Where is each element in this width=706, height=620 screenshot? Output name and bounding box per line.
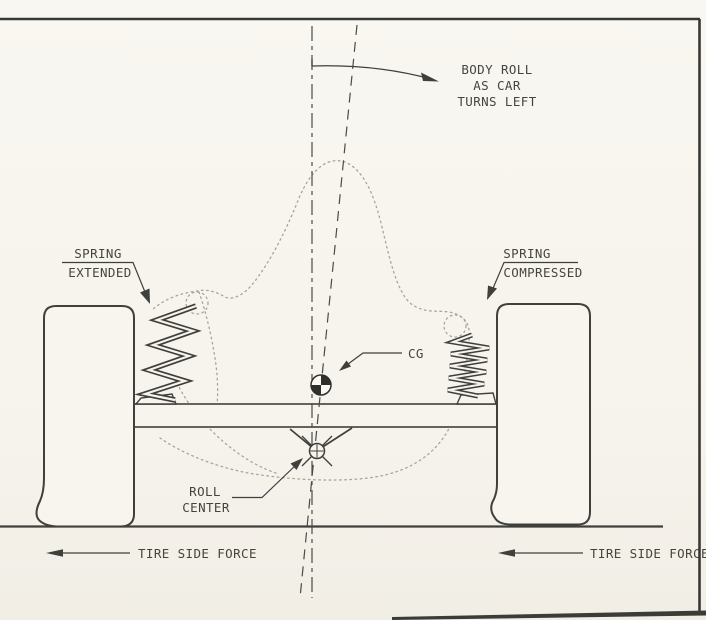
body-roll-label-line2: AS CAR <box>473 78 521 93</box>
cg-leader <box>344 353 402 367</box>
left-spring-extended <box>145 306 196 400</box>
spring-compressed-callout: SPRING COMPRESSED <box>487 246 583 300</box>
body-roll-label-line1: BODY ROLL <box>461 62 532 77</box>
spring-compressed-label-line1: SPRING <box>503 246 551 261</box>
spring-extended-arrowhead <box>140 289 150 305</box>
spring-extended-label-line1: SPRING <box>74 246 122 261</box>
roll-center-label-line2: CENTER <box>182 500 230 515</box>
left-tire <box>37 306 135 527</box>
spring-extended-label-line2: EXTENDED <box>68 265 131 280</box>
body-roll-annotation: BODY ROLL AS CAR TURNS LEFT <box>312 59 537 109</box>
tire-side-force-left: TIRE SIDE FORCE <box>46 546 257 561</box>
ghost-body-path <box>152 161 469 480</box>
spring-extended-callout: SPRING EXTENDED <box>62 246 150 304</box>
spring-compressed-arrowhead <box>487 286 497 301</box>
roll-center-label-line1: ROLL <box>189 484 221 499</box>
rolled-axis-dashed-line <box>300 25 357 598</box>
body-roll-label-line3: TURNS LEFT <box>457 94 536 109</box>
tire-side-force-left-arrowhead <box>46 549 63 557</box>
scan-bottom-edge <box>392 611 706 620</box>
cg-arrowhead <box>339 361 351 372</box>
ghost-lower-left-strand <box>177 383 279 474</box>
spring-compressed-label-line2: COMPRESSED <box>503 265 582 280</box>
suspension-roll-diagram: BODY ROLL AS CAR TURNS LEFT SPRING EXTEN… <box>0 0 706 620</box>
tire-side-force-right: TIRE SIDE FORCE <box>498 546 706 561</box>
ghost-body-outline <box>152 161 469 480</box>
tire-side-force-right-label: TIRE SIDE FORCE <box>590 546 706 561</box>
cg-symbol <box>311 375 331 395</box>
ghost-left-side-strand <box>199 292 218 410</box>
tire-side-force-left-label: TIRE SIDE FORCE <box>138 546 257 561</box>
roll-center-callout: ROLL CENTER <box>182 458 303 515</box>
cg-quadrant-sw <box>311 385 321 395</box>
roll-center-symbol <box>302 436 332 466</box>
right-tire <box>491 304 590 525</box>
linkage-left-arm <box>290 429 313 448</box>
cg-callout: CG <box>339 346 424 371</box>
tire-side-force-right-arrowhead <box>498 549 515 557</box>
cg-label: CG <box>408 346 424 361</box>
ghost-right-fender-circle <box>444 315 466 337</box>
cg-quadrant-ne <box>321 375 331 385</box>
body-roll-arc <box>312 59 431 79</box>
axle-beam <box>134 404 497 427</box>
scanned-diagram-page: BODY ROLL AS CAR TURNS LEFT SPRING EXTEN… <box>0 0 706 620</box>
right-spring-compressed <box>448 335 489 396</box>
body-roll-arrowhead <box>421 73 439 82</box>
linkage-right-arm <box>321 428 352 448</box>
